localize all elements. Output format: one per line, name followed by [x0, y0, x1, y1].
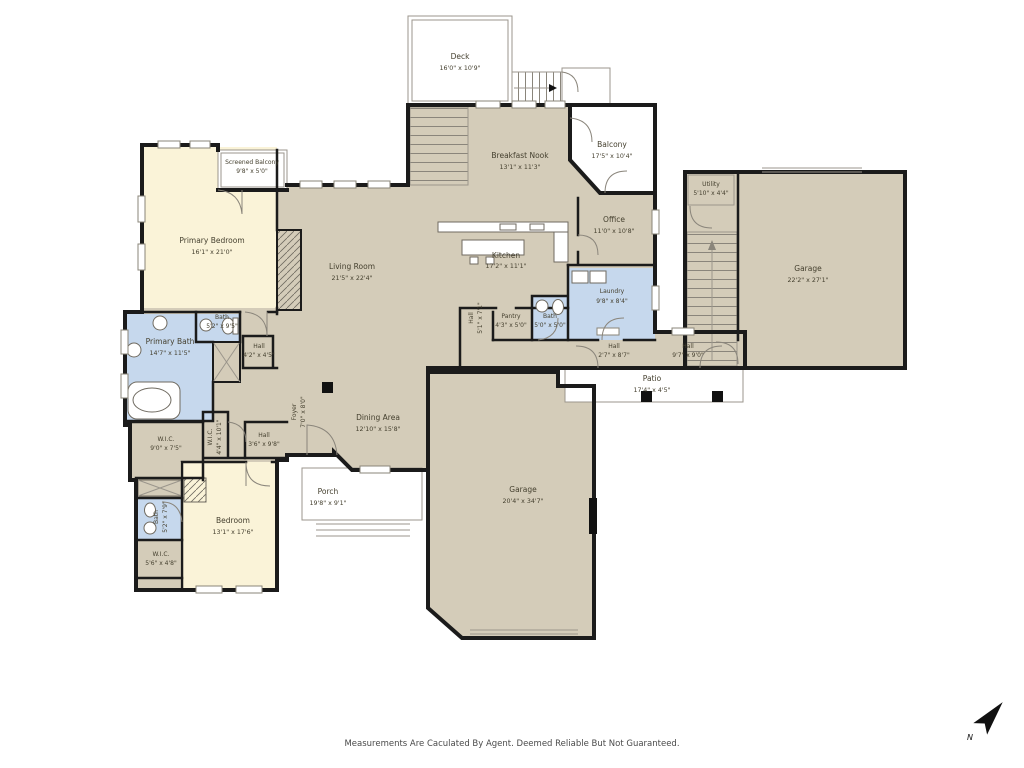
room-dims-kitchen: 17'2" x 11'1" — [485, 263, 526, 270]
window — [158, 141, 180, 148]
room-dims-garage-right: 22'2" x 27'1" — [787, 277, 828, 284]
room-label-pantry: Pantry — [501, 313, 521, 320]
room-dims-utility: 5'10" x 4'4" — [693, 190, 729, 197]
dryer — [590, 271, 606, 283]
bathtub-basin — [133, 388, 171, 412]
washer — [572, 271, 588, 283]
room-dims-lower-wic: 5'6" x 4'8" — [145, 560, 177, 567]
room-dims-breakfast-nook: 13'1" x 11'3" — [499, 164, 540, 171]
room-label-hall-bath: Bath — [543, 313, 557, 320]
window — [138, 244, 145, 270]
room-label-bedroom: Bedroom — [216, 516, 250, 525]
kitchen-fridge — [554, 232, 568, 262]
window — [652, 210, 659, 234]
window — [121, 374, 128, 398]
room-label-balcony: Balcony — [597, 140, 627, 149]
room-dims-garage-bottom: 20'4" x 34'7" — [502, 498, 543, 505]
svg-text:Foyer: Foyer — [291, 403, 298, 420]
closet-hatch-diag — [184, 478, 206, 502]
room-label-porch: Porch — [318, 487, 339, 496]
room-dims-hall-foyer: 3'6" x 9'8" — [248, 441, 280, 448]
window — [138, 196, 145, 222]
room-dims-porch: 19'8" x 9'1" — [309, 500, 346, 507]
interior-stairs — [410, 107, 468, 185]
room-label-kitchen: Kitchen — [492, 251, 520, 260]
room-label-hall-garage: Hall — [682, 343, 694, 350]
window — [597, 328, 619, 335]
room-label-wic-left: W.I.C. — [158, 436, 175, 443]
room-dims-bedroom: 13'1" x 17'6" — [212, 529, 253, 536]
svg-text:4'4" x 10'1": 4'4" x 10'1" — [216, 419, 223, 455]
island-stool — [470, 257, 478, 264]
room-label-primary-bedroom: Primary Bedroom — [179, 236, 244, 245]
room-dims-small-bath: 5'2" x 9'5" — [206, 323, 238, 330]
compass: N — [967, 696, 1010, 742]
floor-plan-page: Deck 16'0" x 10'9" Screened Balcony 9'8"… — [0, 0, 1024, 768]
svg-text:Bath: Bath — [153, 510, 160, 524]
room-dims-primary-bedroom: 16'1" x 21'0" — [191, 249, 232, 256]
room-dims-hall-garage: 9'7" x 9'0" — [672, 352, 704, 359]
north-arrow-icon — [973, 696, 1009, 734]
closet-hatch-x — [138, 480, 182, 496]
window — [545, 101, 565, 108]
window — [121, 330, 128, 354]
room-label-hall-patio: Hall — [608, 343, 620, 350]
sink — [536, 300, 548, 312]
room-label-office: Office — [603, 215, 625, 224]
window — [476, 101, 500, 108]
room-dims-living-room: 21'5" x 22'4" — [331, 275, 372, 282]
garage-stairs — [687, 232, 737, 366]
svg-text:Hall: Hall — [468, 312, 475, 324]
room-label-utility: Utility — [702, 181, 720, 188]
window — [652, 286, 659, 310]
floor-plan: Deck 16'0" x 10'9" Screened Balcony 9'8"… — [0, 0, 1024, 768]
room-dims-wic-left: 9'0" x 7'5" — [150, 445, 182, 452]
sink — [153, 316, 167, 330]
garage-bottom-area — [428, 372, 594, 638]
room-dims-dining: 12'10" x 15'8" — [355, 426, 400, 433]
room-label-lower-wic: W.I.C. — [153, 551, 170, 558]
fireplace-hatch — [277, 230, 301, 310]
room-label-breakfast-nook: Breakfast Nook — [491, 151, 549, 160]
window — [236, 586, 262, 593]
window — [360, 466, 390, 473]
patio-post — [712, 391, 723, 402]
room-dims-pantry: 4'3" x 5'0" — [495, 322, 527, 329]
room-label-dining: Dining Area — [356, 413, 400, 422]
svg-text:W.I.C.: W.I.C. — [207, 428, 214, 445]
linen-closet — [213, 342, 240, 382]
room-dims-hall-patio: 2'7" x 8'7" — [598, 352, 630, 359]
room-label-screened-balcony: Screened Balcony — [225, 159, 279, 166]
svg-text:5'1" x 7'1": 5'1" x 7'1" — [477, 302, 484, 334]
room-dims-laundry: 9'8" x 8'4" — [596, 298, 628, 305]
window — [300, 181, 322, 188]
room-dims-balcony: 17'5" x 10'4" — [591, 153, 632, 160]
window — [368, 181, 390, 188]
room-label-garage-bottom: Garage — [509, 485, 537, 494]
window — [190, 141, 210, 148]
deck-door-arc — [562, 72, 578, 92]
room-dims-primary-bath: 14'7" x 11'5" — [149, 350, 190, 357]
room-label-deck: Deck — [451, 52, 471, 61]
room-label-living-room: Living Room — [329, 262, 375, 271]
room-label-laundry: Laundry — [600, 288, 625, 295]
room-label-patio: Patio — [643, 374, 662, 383]
room-dims-screened-balcony: 9'8" x 5'0" — [236, 168, 268, 175]
deck-landing — [562, 68, 610, 104]
room-label-garage-right: Garage — [794, 264, 822, 273]
kitchen-sink — [500, 224, 516, 230]
svg-text:7'0" x 8'0": 7'0" x 8'0" — [300, 396, 307, 428]
kitchen-cooktop — [530, 224, 544, 230]
sink — [127, 343, 141, 357]
room-label-primary-bath: Primary Bath — [146, 337, 195, 346]
compass-north-label: N — [967, 733, 973, 742]
room-label-hall-bath-cluster: Hall — [253, 343, 265, 350]
garage-side-door — [589, 498, 597, 534]
room-dims-patio: 17'4" x 4'5" — [633, 387, 670, 394]
room-dims-hall-bath-cluster: 4'2" x 4'5" — [243, 352, 275, 359]
room-dims-hall-bath: 5'0" x 5'0" — [534, 322, 566, 329]
window — [196, 586, 222, 593]
room-label-hall-foyer: Hall — [258, 432, 270, 439]
deck — [408, 16, 610, 105]
window — [512, 101, 536, 108]
window — [334, 181, 356, 188]
svg-text:5'2" x 7'9": 5'2" x 7'9" — [162, 501, 169, 533]
lower-bath-area — [138, 498, 182, 540]
window — [672, 328, 694, 335]
room-dims-office: 11'0" x 10'8" — [593, 228, 634, 235]
footer-disclaimer: Measurements Are Caculated By Agent. Dee… — [344, 739, 679, 749]
room-label-small-bath: Bath — [215, 314, 229, 321]
room-dims-deck: 16'0" x 10'9" — [439, 65, 480, 72]
structural-post — [322, 382, 333, 393]
